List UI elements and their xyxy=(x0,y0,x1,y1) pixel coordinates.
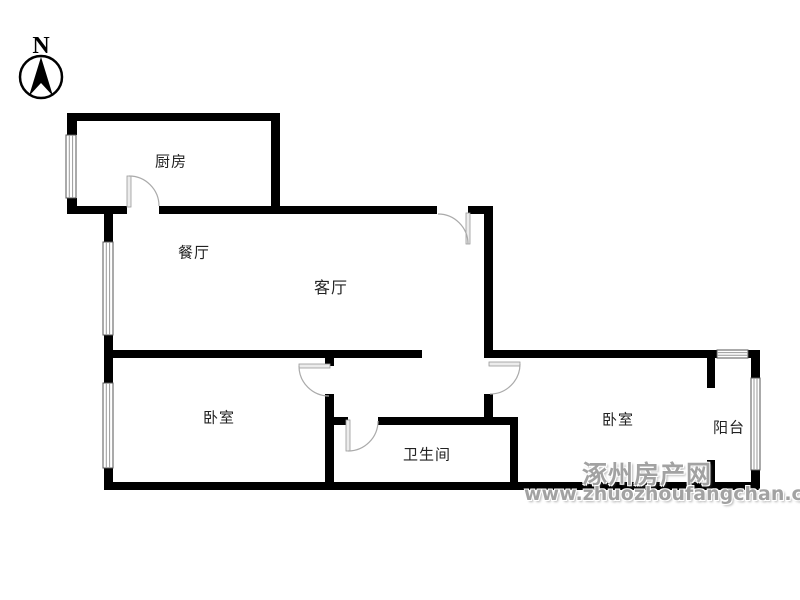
doors xyxy=(127,176,520,451)
wall-left-bedroom-upper xyxy=(104,358,113,383)
wall-left-bedroom-lower xyxy=(104,468,113,484)
wall-bedroomleft-lower xyxy=(325,394,334,484)
window-dining xyxy=(103,242,113,335)
door-entrance xyxy=(438,213,470,244)
room-label-balcony: 阳台 xyxy=(713,417,745,438)
wall-bedroomright-door-lower xyxy=(484,394,493,425)
window-balcony xyxy=(751,378,760,470)
room-label-dining: 餐厅 xyxy=(178,242,210,263)
wall-balcony-upper xyxy=(707,358,715,388)
wall-top-a xyxy=(67,206,127,214)
door-kitchen xyxy=(127,176,159,207)
wall-entry-vertical xyxy=(484,206,493,358)
wall-right-upper xyxy=(751,358,760,378)
compass: N xyxy=(20,33,62,98)
wall-top-b xyxy=(159,206,437,214)
room-label-living: 客厅 xyxy=(314,274,348,298)
floor-plan-drawing: N xyxy=(0,0,800,600)
door-bedroom-left xyxy=(299,364,330,396)
wall-kitchen-top xyxy=(67,113,280,121)
wall-rightwing-top xyxy=(484,350,717,358)
window-kitchen xyxy=(66,135,76,198)
window-bedroom-left xyxy=(103,383,113,468)
room-label-bedroom-right: 卧室 xyxy=(602,409,634,430)
wall-middle-horizontal xyxy=(104,350,422,358)
room-label-bathroom: 卫生间 xyxy=(403,444,451,465)
wall-bathroom-right xyxy=(510,425,518,482)
wall-rightwing-top-corner xyxy=(748,350,760,358)
wall-right-lower xyxy=(751,470,760,482)
wall-left-dining-upper xyxy=(104,214,113,242)
compass-needle-icon xyxy=(29,57,53,96)
wall-bathroom-top-b xyxy=(378,417,518,425)
room-label-bedroom-left: 卧室 xyxy=(203,407,235,428)
room-label-kitchen: 厨房 xyxy=(155,151,187,172)
door-bedroom-right xyxy=(489,362,520,394)
wall-kitchen-left-upper xyxy=(67,121,77,135)
compass-north-label: N xyxy=(32,33,50,59)
floor-plan-canvas: N xyxy=(0,0,800,600)
window-bedroom-right-top xyxy=(717,350,748,358)
door-bathroom xyxy=(346,420,378,451)
watermark-site-url: www.zhuozhoufangchan.com xyxy=(524,483,800,505)
wall-kitchen-right xyxy=(271,121,280,206)
